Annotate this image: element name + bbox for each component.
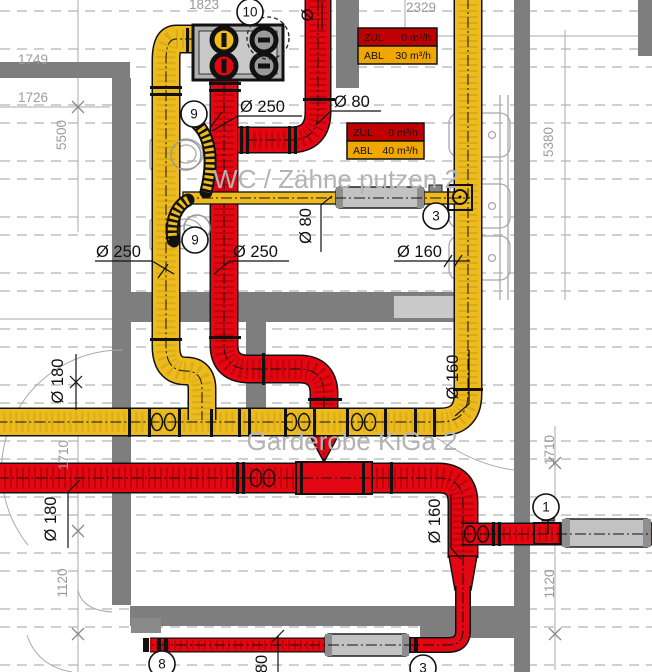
airflow-box-1: ZUL 0 m³/h ABL 30 m³/h (358, 28, 437, 64)
room-label-wc: WC / Zähne putzen 2 (213, 164, 459, 194)
svg-text:3: 3 (419, 661, 427, 672)
abl-label: ABL (353, 145, 373, 157)
duct-label-partial-top: Ø (299, 8, 317, 21)
svg-text:1: 1 (542, 500, 550, 515)
duct-label-180-bottom-left: Ø 180 (42, 497, 60, 542)
duct-label-250-mid: Ø 250 (233, 243, 278, 261)
duct-label-80-top: Ø 80 (334, 93, 370, 111)
wall-top-right (638, 0, 652, 56)
svg-text:9: 9 (190, 107, 198, 122)
wall-bottom-left-stub (131, 618, 161, 633)
svg-text:9: 9 (191, 233, 199, 248)
position-tag-1: 1 (533, 494, 559, 520)
svg-text:10: 10 (242, 5, 257, 20)
dim-1120-left: 1120 (55, 568, 70, 597)
abl-label: ABL (364, 50, 384, 62)
duct-label-160-bottom-right: Ø 160 (426, 499, 444, 544)
zul-value: 0 m³/h (401, 32, 431, 44)
dim-1823: 1823 (189, 0, 219, 12)
zul-value: 0 m³/h (388, 127, 418, 139)
wall-right-vertical (514, 0, 530, 672)
dim-1749: 1749 (18, 52, 48, 67)
wall-opening (394, 296, 458, 318)
abl-value: 40 m³/h (382, 145, 418, 157)
duct-label-80-wc: Ø 80 (297, 208, 315, 244)
duct-label-80-bottom: 80 (253, 655, 271, 672)
silencer-right (562, 519, 651, 547)
wall-left-vertical (112, 78, 131, 605)
zul-label: ZUL (364, 32, 384, 44)
duct-label-160-right: Ø 160 (444, 355, 462, 400)
wall-top-mid-vertical (336, 0, 359, 88)
heat-recovery-unit (193, 17, 289, 80)
airflow-box-2: ZUL 0 m³/h ABL 40 m³/h (347, 123, 424, 159)
svg-text:8: 8 (158, 657, 166, 672)
dim-1710-left: 1710 (56, 440, 71, 470)
room-label-garderobe: Garderobe KiGa 2 (246, 426, 457, 456)
position-tag-10: 10 (237, 0, 263, 25)
floor-plan-drawing: Ø 250 Ø 80 Ø 250 Ø 250 Ø 160 Ø 80 Ø Ø 16… (0, 0, 652, 672)
dim-2329: 2329 (406, 0, 436, 15)
dim-1120-right: 1120 (542, 569, 557, 598)
wall-bottom-right (420, 606, 530, 638)
zul-label: ZUL (353, 127, 373, 139)
dim-1710-right: 1710 (542, 435, 557, 465)
duct-label-250-top: Ø 250 (240, 98, 285, 116)
dim-1726: 1726 (18, 90, 48, 105)
position-tag-8: 8 (149, 651, 175, 672)
hvac-floor-plan-view[interactable]: Ø 250 Ø 80 Ø 250 Ø 250 Ø 160 Ø 80 Ø Ø 16… (0, 0, 652, 672)
duct-label-250-left: Ø 250 (96, 243, 141, 261)
svg-text:3: 3 (432, 209, 440, 224)
position-tag-9-bottom: 9 (182, 227, 208, 253)
dim-5380: 5380 (541, 127, 556, 157)
duct-label-160-mid: Ø 160 (397, 243, 442, 261)
abl-value: 30 m³/h (395, 50, 431, 62)
position-tag-9-top: 9 (181, 101, 207, 127)
dim-5500: 5500 (54, 120, 69, 150)
position-tag-3-wc: 3 (423, 203, 449, 229)
duct-label-180-left: Ø 180 (49, 359, 67, 404)
